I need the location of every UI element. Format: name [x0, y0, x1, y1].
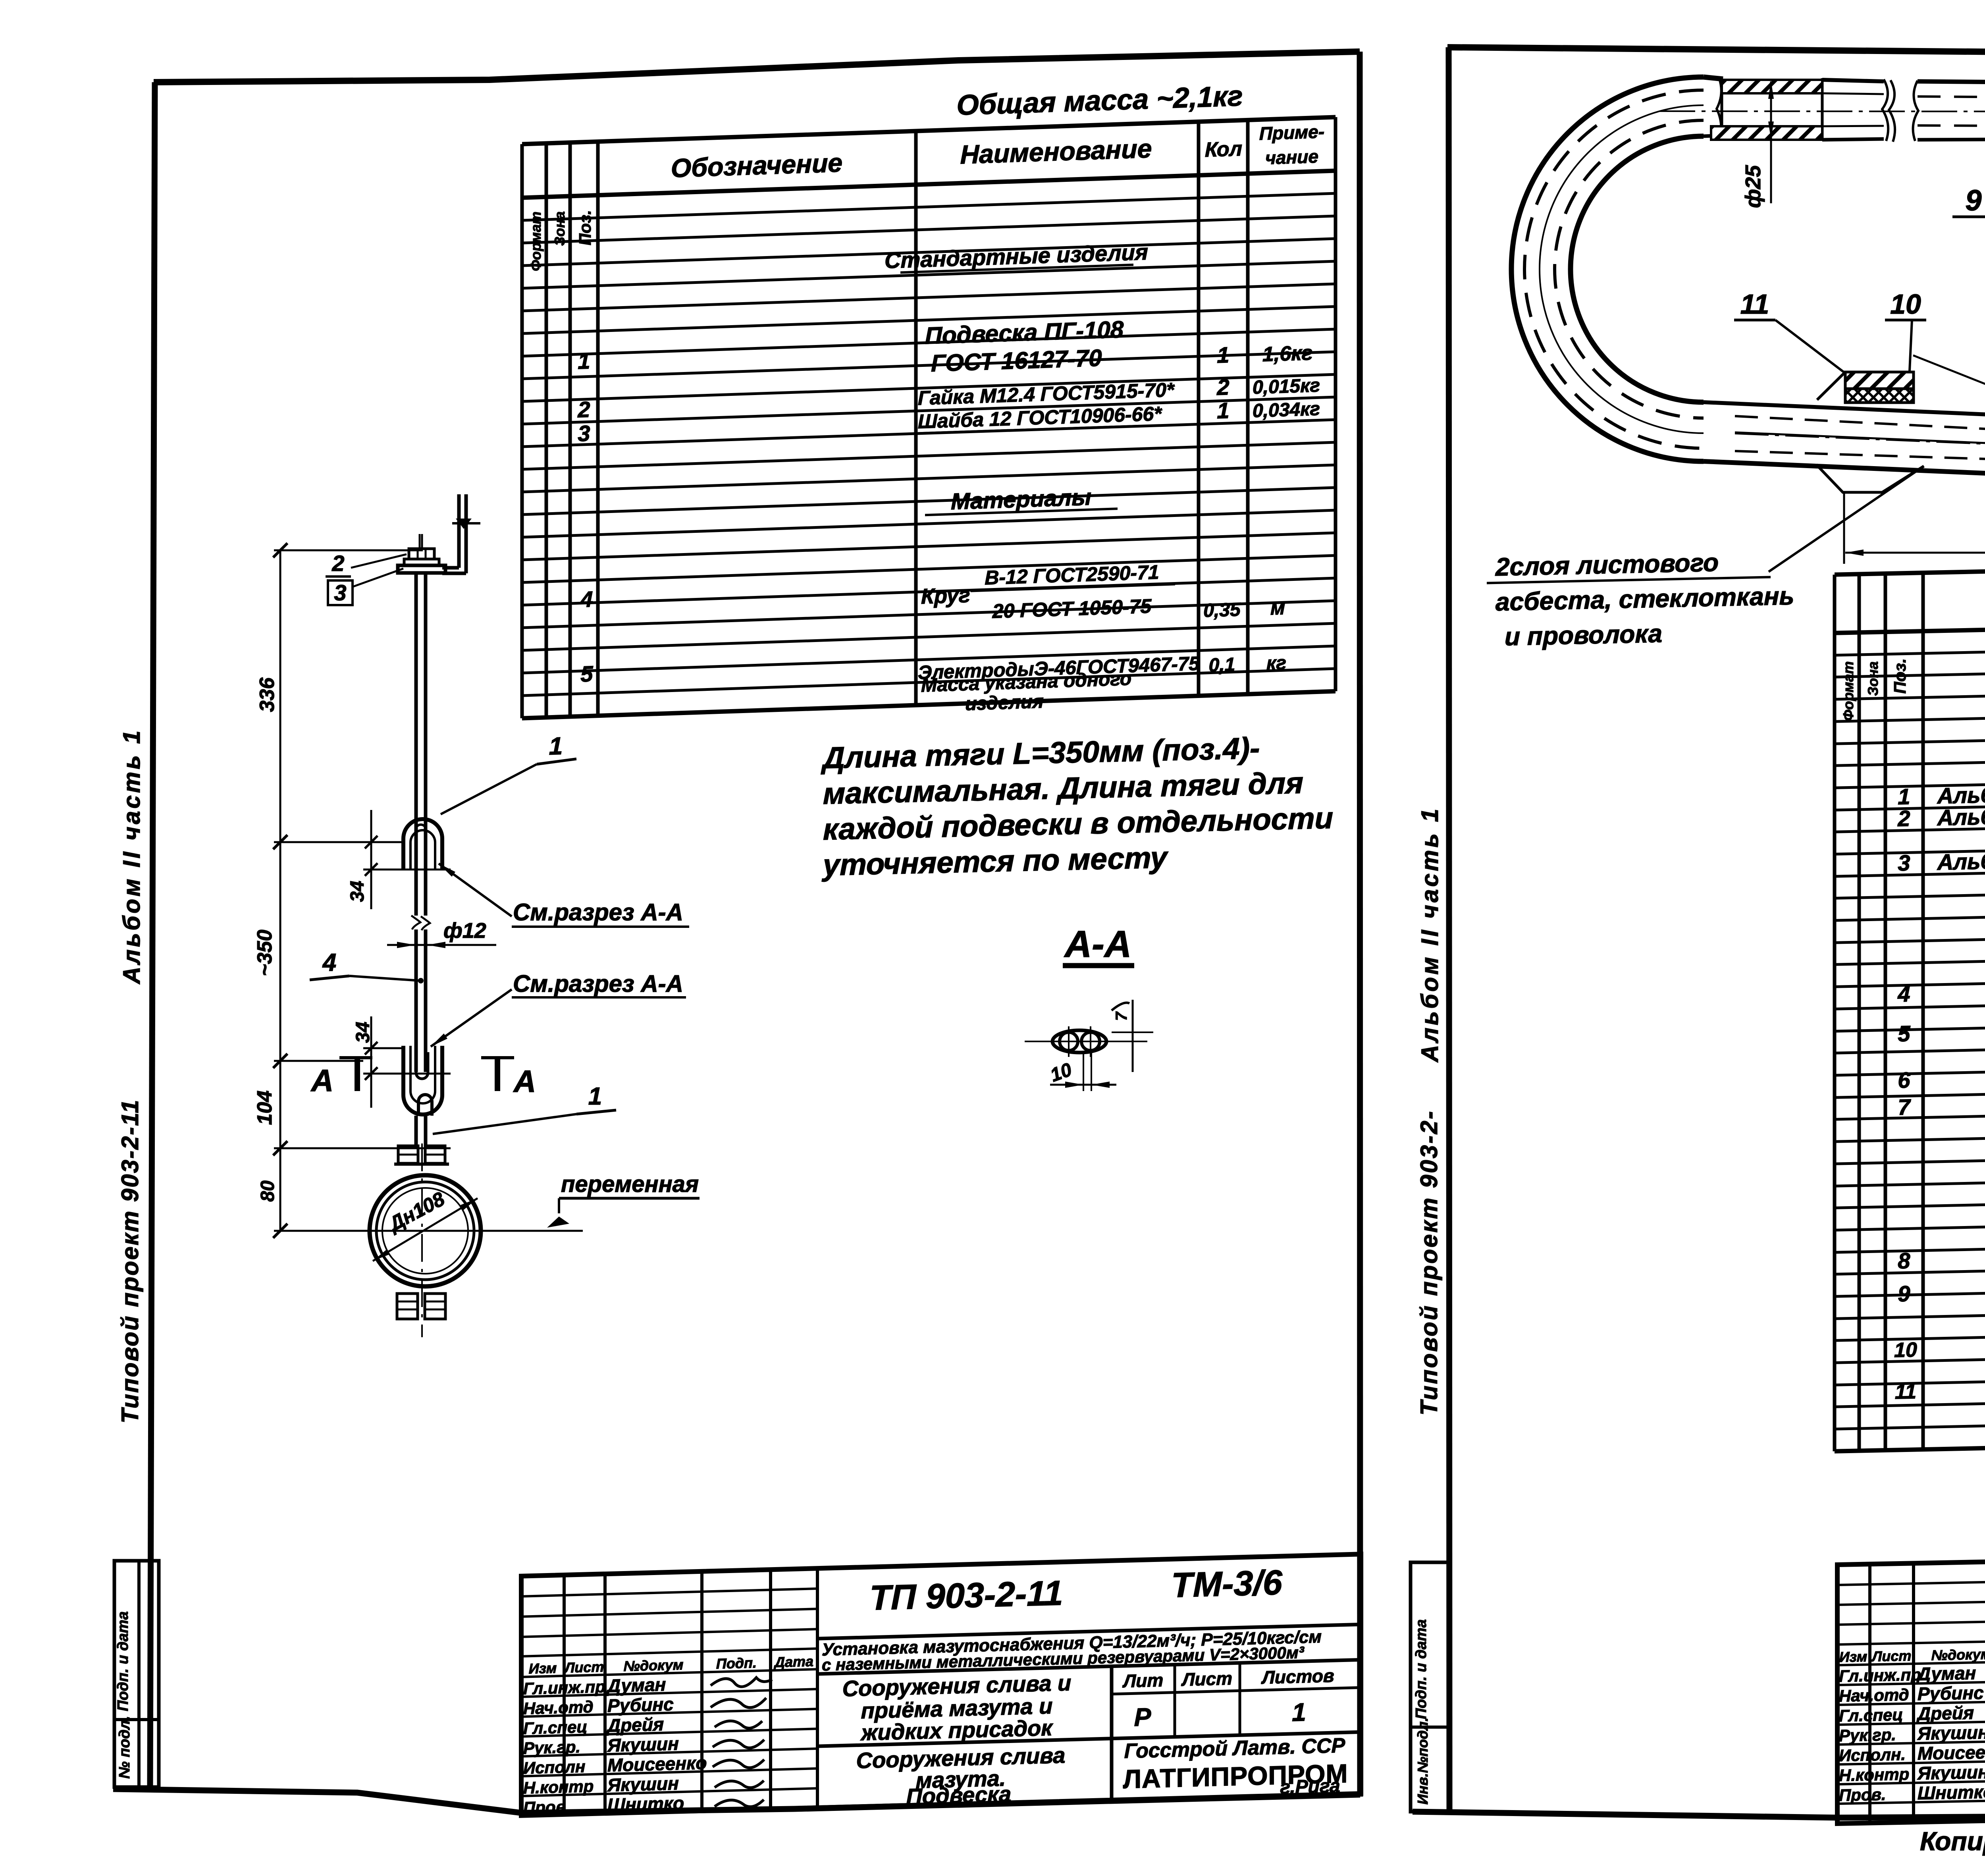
svg-text:См.разрез А-А: См.разрез А-А: [513, 970, 683, 997]
svg-text:Кол: Кол: [1205, 137, 1242, 162]
svg-text:Подп. и дата: Подп. и дата: [115, 1611, 131, 1711]
svg-text:Н.контр: Н.контр: [1839, 1765, 1909, 1785]
svg-text:ф12: ф12: [443, 919, 486, 943]
svg-text:10: 10: [1894, 1338, 1917, 1362]
svg-text:34: 34: [347, 881, 368, 902]
svg-text:Формат: Формат: [1840, 661, 1856, 721]
svg-text:Нач.отд: Нач.отд: [1839, 1685, 1909, 1705]
svg-text:Нач.отд: Нач.отд: [523, 1697, 594, 1718]
svg-text:Формат: Формат: [528, 211, 544, 272]
svg-text:Якушин: Якушин: [1917, 1762, 1985, 1783]
svg-text:9: 9: [1965, 184, 1981, 217]
svg-text:чание: чание: [1265, 146, 1318, 168]
svg-text:Р: Р: [1134, 1702, 1151, 1731]
svg-text:Н.контр: Н.контр: [523, 1777, 594, 1797]
svg-text:Моисеенко: Моисеенко: [1918, 1741, 1985, 1764]
svg-text:80: 80: [257, 1180, 278, 1202]
svg-text:11: 11: [1895, 1380, 1916, 1404]
svg-text:Зона: Зона: [551, 211, 568, 246]
svg-text:Лит: Лит: [1122, 1670, 1164, 1691]
svg-text:переменная: переменная: [561, 1171, 699, 1197]
svg-text:уточняется по месту: уточняется по месту: [821, 841, 1169, 882]
svg-text:11: 11: [1740, 289, 1769, 320]
svg-text:м: м: [1270, 596, 1285, 619]
svg-text:Шнитко: Шнитко: [1918, 1781, 1985, 1803]
svg-text:Изм: Изм: [529, 1660, 557, 1677]
svg-text:асбеста, стеклоткань: асбеста, стеклоткань: [1495, 581, 1794, 616]
svg-text:и проволока: и проволока: [1505, 619, 1662, 651]
svg-text:1: 1: [588, 1083, 602, 1110]
svg-text:1: 1: [549, 733, 563, 760]
svg-text:Типовой проект 903-2-: Типовой проект 903-2-: [1416, 1110, 1442, 1415]
svg-text:0,034кг: 0,034кг: [1253, 398, 1320, 422]
svg-text:Рук.гр.: Рук.гр.: [1839, 1725, 1896, 1745]
svg-text:Гл.спец: Гл.спец: [523, 1717, 587, 1737]
svg-text:Моисеенко: Моисеенко: [607, 1752, 707, 1776]
svg-text:Лист: Лист: [1871, 1647, 1912, 1664]
svg-text:Альбом VI 62.02.00.003: Альбом VI 62.02.00.003: [1937, 844, 1985, 875]
svg-text:ТМ-3/6: ТМ-3/6: [1171, 1563, 1283, 1605]
svg-text:Дата: Дата: [773, 1653, 813, 1670]
svg-text:104: 104: [253, 1091, 276, 1125]
svg-text:Шнитко: Шнитко: [607, 1793, 684, 1815]
svg-text:3: 3: [334, 580, 346, 605]
svg-text:~350: ~350: [253, 929, 276, 976]
svg-text:0,1: 0,1: [1209, 654, 1235, 676]
svg-text:Общая масса ~2,1кг: Общая масса ~2,1кг: [957, 80, 1243, 121]
svg-text:№докум: №докум: [1931, 1646, 1985, 1664]
svg-text:Гл.спец: Гл.спец: [1839, 1705, 1903, 1725]
svg-text:4: 4: [580, 586, 593, 612]
svg-text:7: 7: [1113, 1011, 1130, 1021]
svg-text:Гл.инж.пр: Гл.инж.пр: [523, 1677, 605, 1698]
svg-text:Лист: Лист: [1181, 1668, 1232, 1690]
svg-text:Пров.: Пров.: [523, 1797, 570, 1817]
svg-text:Приме-: Приме-: [1259, 121, 1324, 144]
svg-text:5: 5: [580, 661, 593, 686]
svg-text:Альбом II часть 1: Альбом II часть 1: [1416, 806, 1443, 1063]
svg-text:Гл.инж.пр: Гл.инж.пр: [1839, 1665, 1921, 1685]
svg-text:г.Рига: г.Рига: [1280, 1776, 1340, 1798]
svg-text:5: 5: [1898, 1021, 1910, 1046]
svg-text:№докум: №докум: [624, 1656, 684, 1674]
svg-text:Рубинс: Рубинс: [607, 1694, 674, 1716]
svg-text:Изм: Изм: [1839, 1648, 1867, 1665]
svg-text:336: 336: [256, 677, 279, 712]
svg-text:А-А: А-А: [1064, 923, 1132, 965]
svg-text:Поз.: Поз.: [1891, 658, 1909, 694]
svg-text:3: 3: [1898, 850, 1910, 875]
svg-text:Поз.: Поз.: [576, 210, 594, 246]
svg-text:Рубинс: Рубинс: [1918, 1682, 1984, 1704]
svg-text:Исполн: Исполн: [523, 1757, 585, 1777]
svg-text:34: 34: [353, 1022, 374, 1043]
svg-text:1: 1: [578, 348, 590, 374]
svg-text:Дрейя: Дрейя: [1916, 1702, 1974, 1724]
svg-text:Типовой проект 903-2-11: Типовой проект 903-2-11: [117, 1099, 143, 1423]
svg-text:№ подл.: № подл.: [116, 1716, 133, 1779]
svg-text:2: 2: [1216, 374, 1229, 400]
svg-text:2слоя листового: 2слоя листового: [1495, 548, 1719, 581]
svg-text:Думан: Думан: [1916, 1662, 1976, 1684]
svg-text:1: 1: [1217, 398, 1229, 423]
svg-text:1: 1: [1898, 784, 1910, 809]
svg-text:Думан: Думан: [606, 1674, 666, 1696]
svg-text:20 ГОСТ 1050-75: 20 ГОСТ 1050-75: [992, 595, 1152, 622]
svg-text:2: 2: [331, 551, 344, 576]
svg-text:Зона: Зона: [1865, 661, 1881, 696]
svg-text:10: 10: [1890, 289, 1921, 320]
svg-text:Наименование: Наименование: [960, 133, 1152, 169]
svg-text:Пров.: Пров.: [1839, 1785, 1886, 1805]
svg-text:Подп. и дата: Подп. и дата: [1413, 1619, 1430, 1719]
svg-text:ГОСТ 16127-70: ГОСТ 16127-70: [931, 345, 1102, 377]
svg-text:А: А: [310, 1063, 333, 1098]
svg-text:7: 7: [1898, 1094, 1911, 1120]
svg-text:ТП 903-2-11: ТП 903-2-11: [869, 1573, 1063, 1618]
svg-text:Якушин: Якушин: [607, 1733, 679, 1756]
svg-text:А: А: [513, 1064, 536, 1099]
svg-text:Якушин: Якушин: [1917, 1722, 1985, 1744]
svg-text:Обозначение: Обозначение: [671, 148, 842, 183]
svg-text:изделия: изделия: [965, 691, 1044, 715]
svg-text:10: 10: [1048, 1059, 1075, 1086]
svg-text:1,6кг: 1,6кг: [1262, 341, 1312, 366]
svg-text:3: 3: [578, 420, 590, 446]
svg-text:2: 2: [1897, 806, 1910, 831]
svg-text:Листов: Листов: [1261, 1665, 1334, 1688]
svg-text:Рук.гр.: Рук.гр.: [523, 1737, 580, 1758]
svg-text:1: 1: [1217, 342, 1229, 368]
svg-text:8: 8: [1898, 1248, 1910, 1273]
svg-text:0,015кг: 0,015кг: [1253, 375, 1320, 398]
svg-text:9: 9: [1898, 1281, 1910, 1306]
svg-text:Дрейя: Дрейя: [606, 1714, 664, 1736]
svg-text:6: 6: [1898, 1067, 1910, 1093]
svg-text:Исполн.: Исполн.: [1839, 1745, 1906, 1765]
svg-text:ф25: ф25: [1741, 165, 1765, 208]
svg-text:Подвеска: Подвеска: [906, 1781, 1012, 1809]
svg-text:4: 4: [1897, 981, 1910, 1006]
svg-text:Инв.№подл.: Инв.№подл.: [1415, 1718, 1431, 1805]
svg-text:Лист: Лист: [564, 1658, 604, 1676]
svg-text:кг: кг: [1266, 652, 1286, 674]
svg-text:0,35: 0,35: [1203, 599, 1241, 621]
svg-text:См.разрез А-А: См.разрез А-А: [513, 899, 683, 925]
svg-text:1: 1: [1292, 1698, 1306, 1727]
svg-text:2: 2: [577, 397, 590, 422]
svg-text:4: 4: [322, 949, 336, 976]
svg-text:Подвеска ПГ-108: Подвеска ПГ-108: [925, 316, 1124, 349]
svg-text:Круг: Круг: [921, 583, 970, 609]
svg-text:Альбом VI 62.02.00.001: Альбом VI 62.02.00.001: [1937, 778, 1985, 808]
svg-text:Копировал: Мава: Копировал: Мава: [1920, 1826, 1985, 1856]
svg-text:Якушин: Якушин: [607, 1773, 679, 1795]
svg-text:Альбом II часть 1: Альбом II часть 1: [118, 728, 145, 985]
svg-text:Подп.: Подп.: [716, 1654, 757, 1672]
